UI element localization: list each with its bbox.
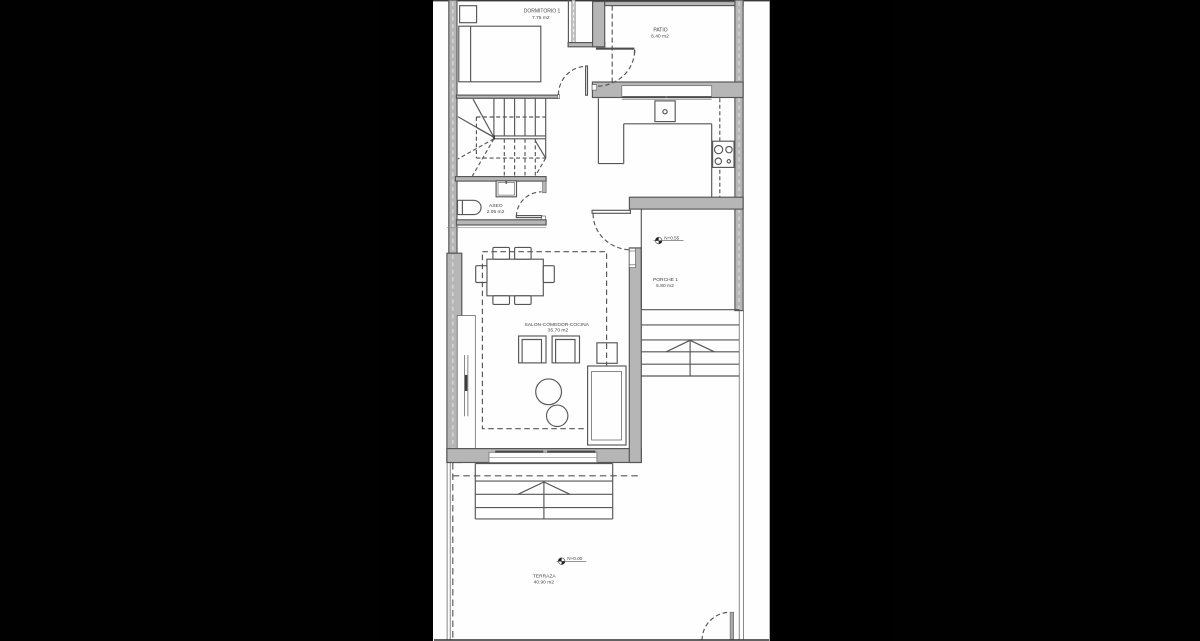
svg-text:6.40 m2: 6.40 m2 [651,34,669,40]
svg-text:DORMITORIO 1: DORMITORIO 1 [524,9,561,15]
svg-text:2.05 m2: 2.05 m2 [487,209,505,215]
svg-text:PATIO: PATIO [653,28,667,34]
svg-text:40.90 m2: 40.90 m2 [534,579,555,585]
svg-text:7.75 m2: 7.75 m2 [532,15,550,21]
svg-text:N+0.55: N+0.55 [664,236,679,241]
svg-text:ASEO: ASEO [489,203,503,209]
svg-text:TERRAZA: TERRAZA [533,574,557,580]
svg-text:N+0.00: N+0.00 [567,556,582,561]
svg-text:35.70 m2: 35.70 m2 [548,327,569,333]
svg-text:PORCHE 1: PORCHE 1 [653,277,678,283]
svg-text:SALON-COMEDOR-COCINA: SALON-COMEDOR-COCINA [524,322,589,328]
svg-text:5.80 m2: 5.80 m2 [656,283,674,289]
